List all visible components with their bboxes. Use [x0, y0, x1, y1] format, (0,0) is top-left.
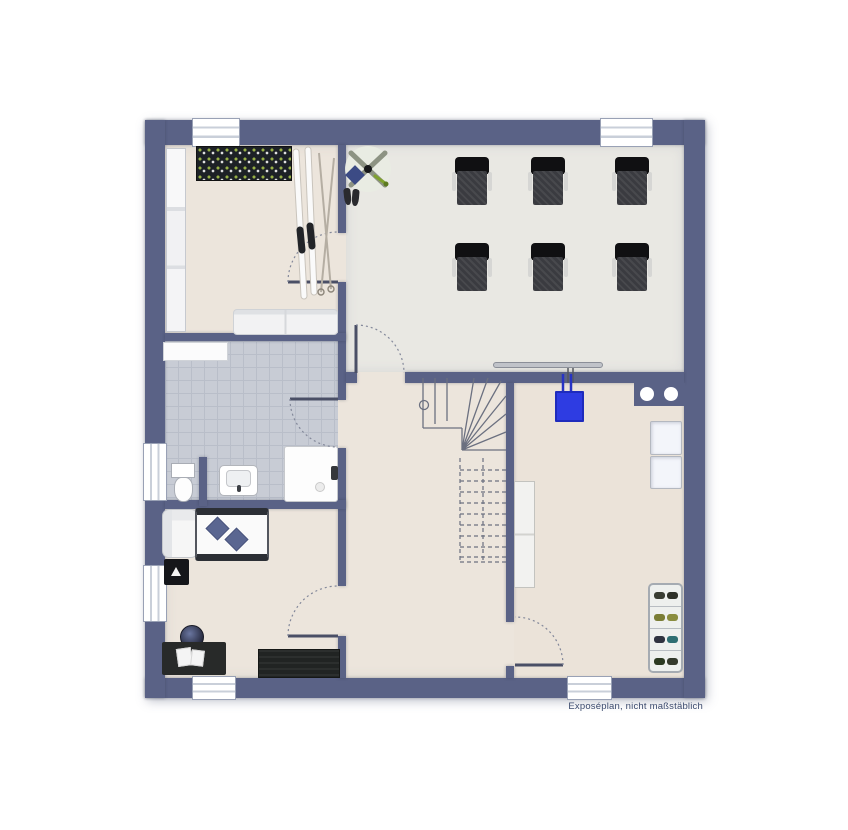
plan-caption: Exposéplan, nicht maßstäblich [568, 701, 703, 712]
ceiling-fan-icon [345, 146, 391, 192]
staircase [420, 378, 507, 562]
door-utility-room [515, 617, 563, 665]
boiler-pipes [563, 374, 571, 391]
door-bedroom [288, 586, 338, 636]
skis-icon [296, 150, 334, 296]
door-bathroom [290, 399, 338, 447]
door-office-room [356, 325, 404, 373]
floorplan-page: Exposéplan, nicht maßstäblich [0, 0, 848, 830]
plan-linework [0, 0, 848, 830]
